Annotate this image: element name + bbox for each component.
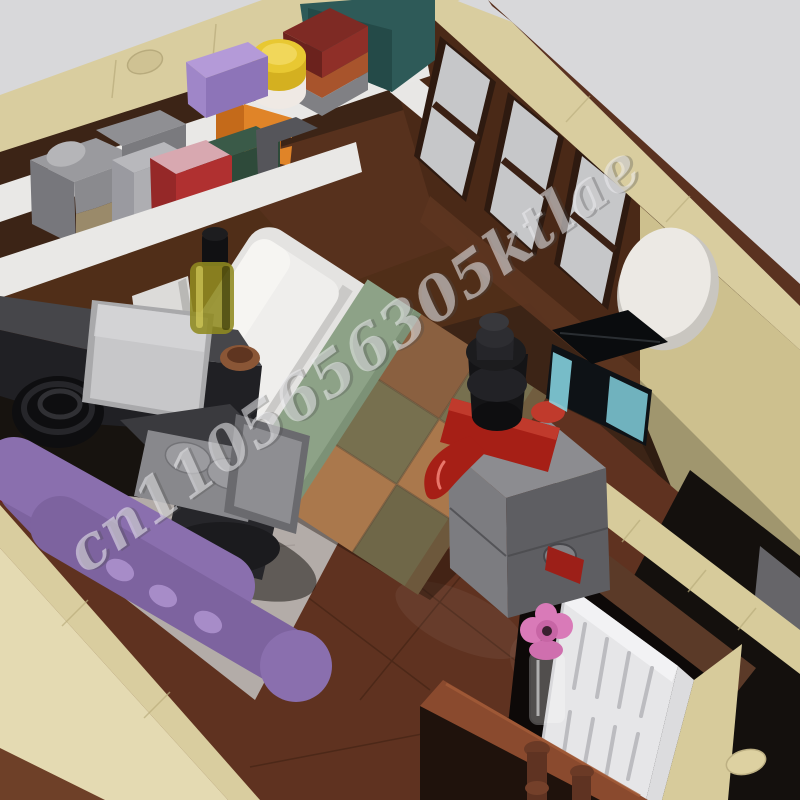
baluster-bulge <box>525 781 549 795</box>
product-render-image: cn1105656305ktlae cn1105656305ktlae <box>0 0 800 800</box>
funnel-flange <box>467 366 527 402</box>
funnel-base <box>472 401 522 431</box>
flower-base <box>529 640 563 660</box>
bottle-cap-top <box>202 227 228 241</box>
lego-bedroom-render: cn1105656305ktlae cn1105656305ktlae <box>0 0 800 800</box>
glass-vase <box>530 652 566 724</box>
brown-cup-inner <box>227 347 253 363</box>
bottle-highlight <box>196 266 203 328</box>
bottle-shade <box>222 266 230 330</box>
sofa-arm-end <box>260 630 332 702</box>
flower-center-hole <box>542 626 552 636</box>
funnel-cap <box>479 313 509 331</box>
baluster-post <box>572 776 591 800</box>
